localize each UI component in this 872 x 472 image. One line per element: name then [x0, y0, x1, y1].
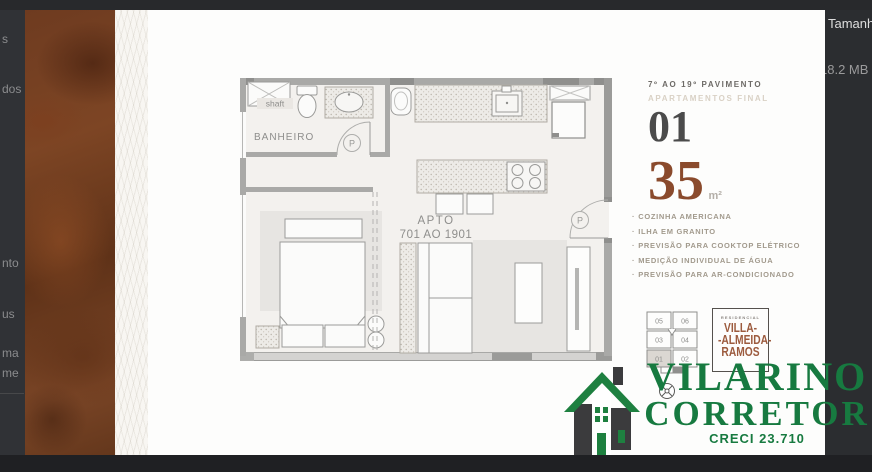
kitchen-island [417, 160, 547, 193]
apto-label-line2: 701 AO 1901 [400, 229, 473, 241]
duct-box [550, 86, 590, 100]
key-plan-unit: 06 [681, 319, 689, 326]
fridge-icon [552, 102, 585, 138]
side-windows [240, 112, 246, 317]
residencial-tagline: RESIDENCIAL [713, 315, 768, 320]
side-table [256, 326, 279, 348]
feature-item: ·PREVISÃO PARA AR-CONDICIONADO [632, 270, 822, 279]
file-size-label: Tamanh [828, 16, 872, 31]
toilet-icon [297, 86, 317, 118]
background-text-fragment: ma [2, 346, 19, 360]
granite-divider [400, 243, 416, 353]
kitchen-counter [415, 85, 547, 122]
background-text-fragment: us [2, 307, 15, 321]
apto-label-line1: APTO [417, 215, 454, 227]
feature-item: ·PREVISÃO PARA COOKTOP ELÉTRICO [632, 241, 822, 250]
tv-panel [567, 247, 590, 351]
broker-name: VILARINO [642, 357, 872, 397]
key-plan-unit: 03 [655, 338, 663, 345]
bottom-bar [0, 455, 872, 472]
coffee-table [515, 263, 542, 323]
shaft-label: shaft [266, 99, 285, 109]
feature-item: ·ILHA EM GRANITO [632, 227, 822, 236]
rust-texture-strip [25, 10, 115, 455]
floor-plan-drawing: shaft BANHEIRO P [240, 73, 612, 363]
laundry-tub [391, 88, 411, 115]
background-text-fragment: s [2, 32, 8, 46]
feature-item: ·COZINHA AMERICANA [632, 212, 822, 221]
broker-role: CORRETOR [642, 397, 872, 430]
top-bar [0, 0, 872, 10]
unit-number: 01 [648, 105, 818, 149]
broker-logo: VILARINO CORRETOR CRECI 23.710 [562, 357, 872, 455]
feature-item: ·MEDIÇÃO INDIVIDUAL DE ÁGUA [632, 256, 822, 265]
area-value: 35 [648, 150, 704, 212]
key-plan-unit: 05 [655, 319, 663, 326]
key-plan-unit: 04 [681, 338, 689, 345]
floors-range: 7º AO 19º PAVIMENTO [648, 80, 818, 89]
vanity-sink [325, 87, 373, 118]
broker-license: CRECI 23.710 [642, 431, 872, 446]
sofa [418, 243, 472, 353]
bed-bench [282, 325, 365, 347]
feature-list: ·COZINHA AMERICANA ·ILHA EM GRANITO ·PRE… [632, 212, 822, 285]
background-text-fragment: dos [2, 82, 21, 96]
area-unit: m² [708, 190, 721, 202]
background-divider [0, 393, 24, 394]
background-text-fragment: me [2, 366, 19, 380]
unit-info: 7º AO 19º PAVIMENTO APARTAMENTOS FINAL 0… [648, 80, 818, 209]
bed [280, 219, 365, 328]
bathroom-label: BANHEIRO [254, 132, 314, 143]
file-size-value: 18.2 MB [825, 62, 868, 77]
door-marker-entry: P [577, 216, 583, 226]
herringbone-strip [115, 10, 148, 455]
door-marker-bathroom: P [349, 139, 355, 149]
house-icon [562, 362, 642, 458]
background-text-fragment: nto [2, 256, 19, 270]
